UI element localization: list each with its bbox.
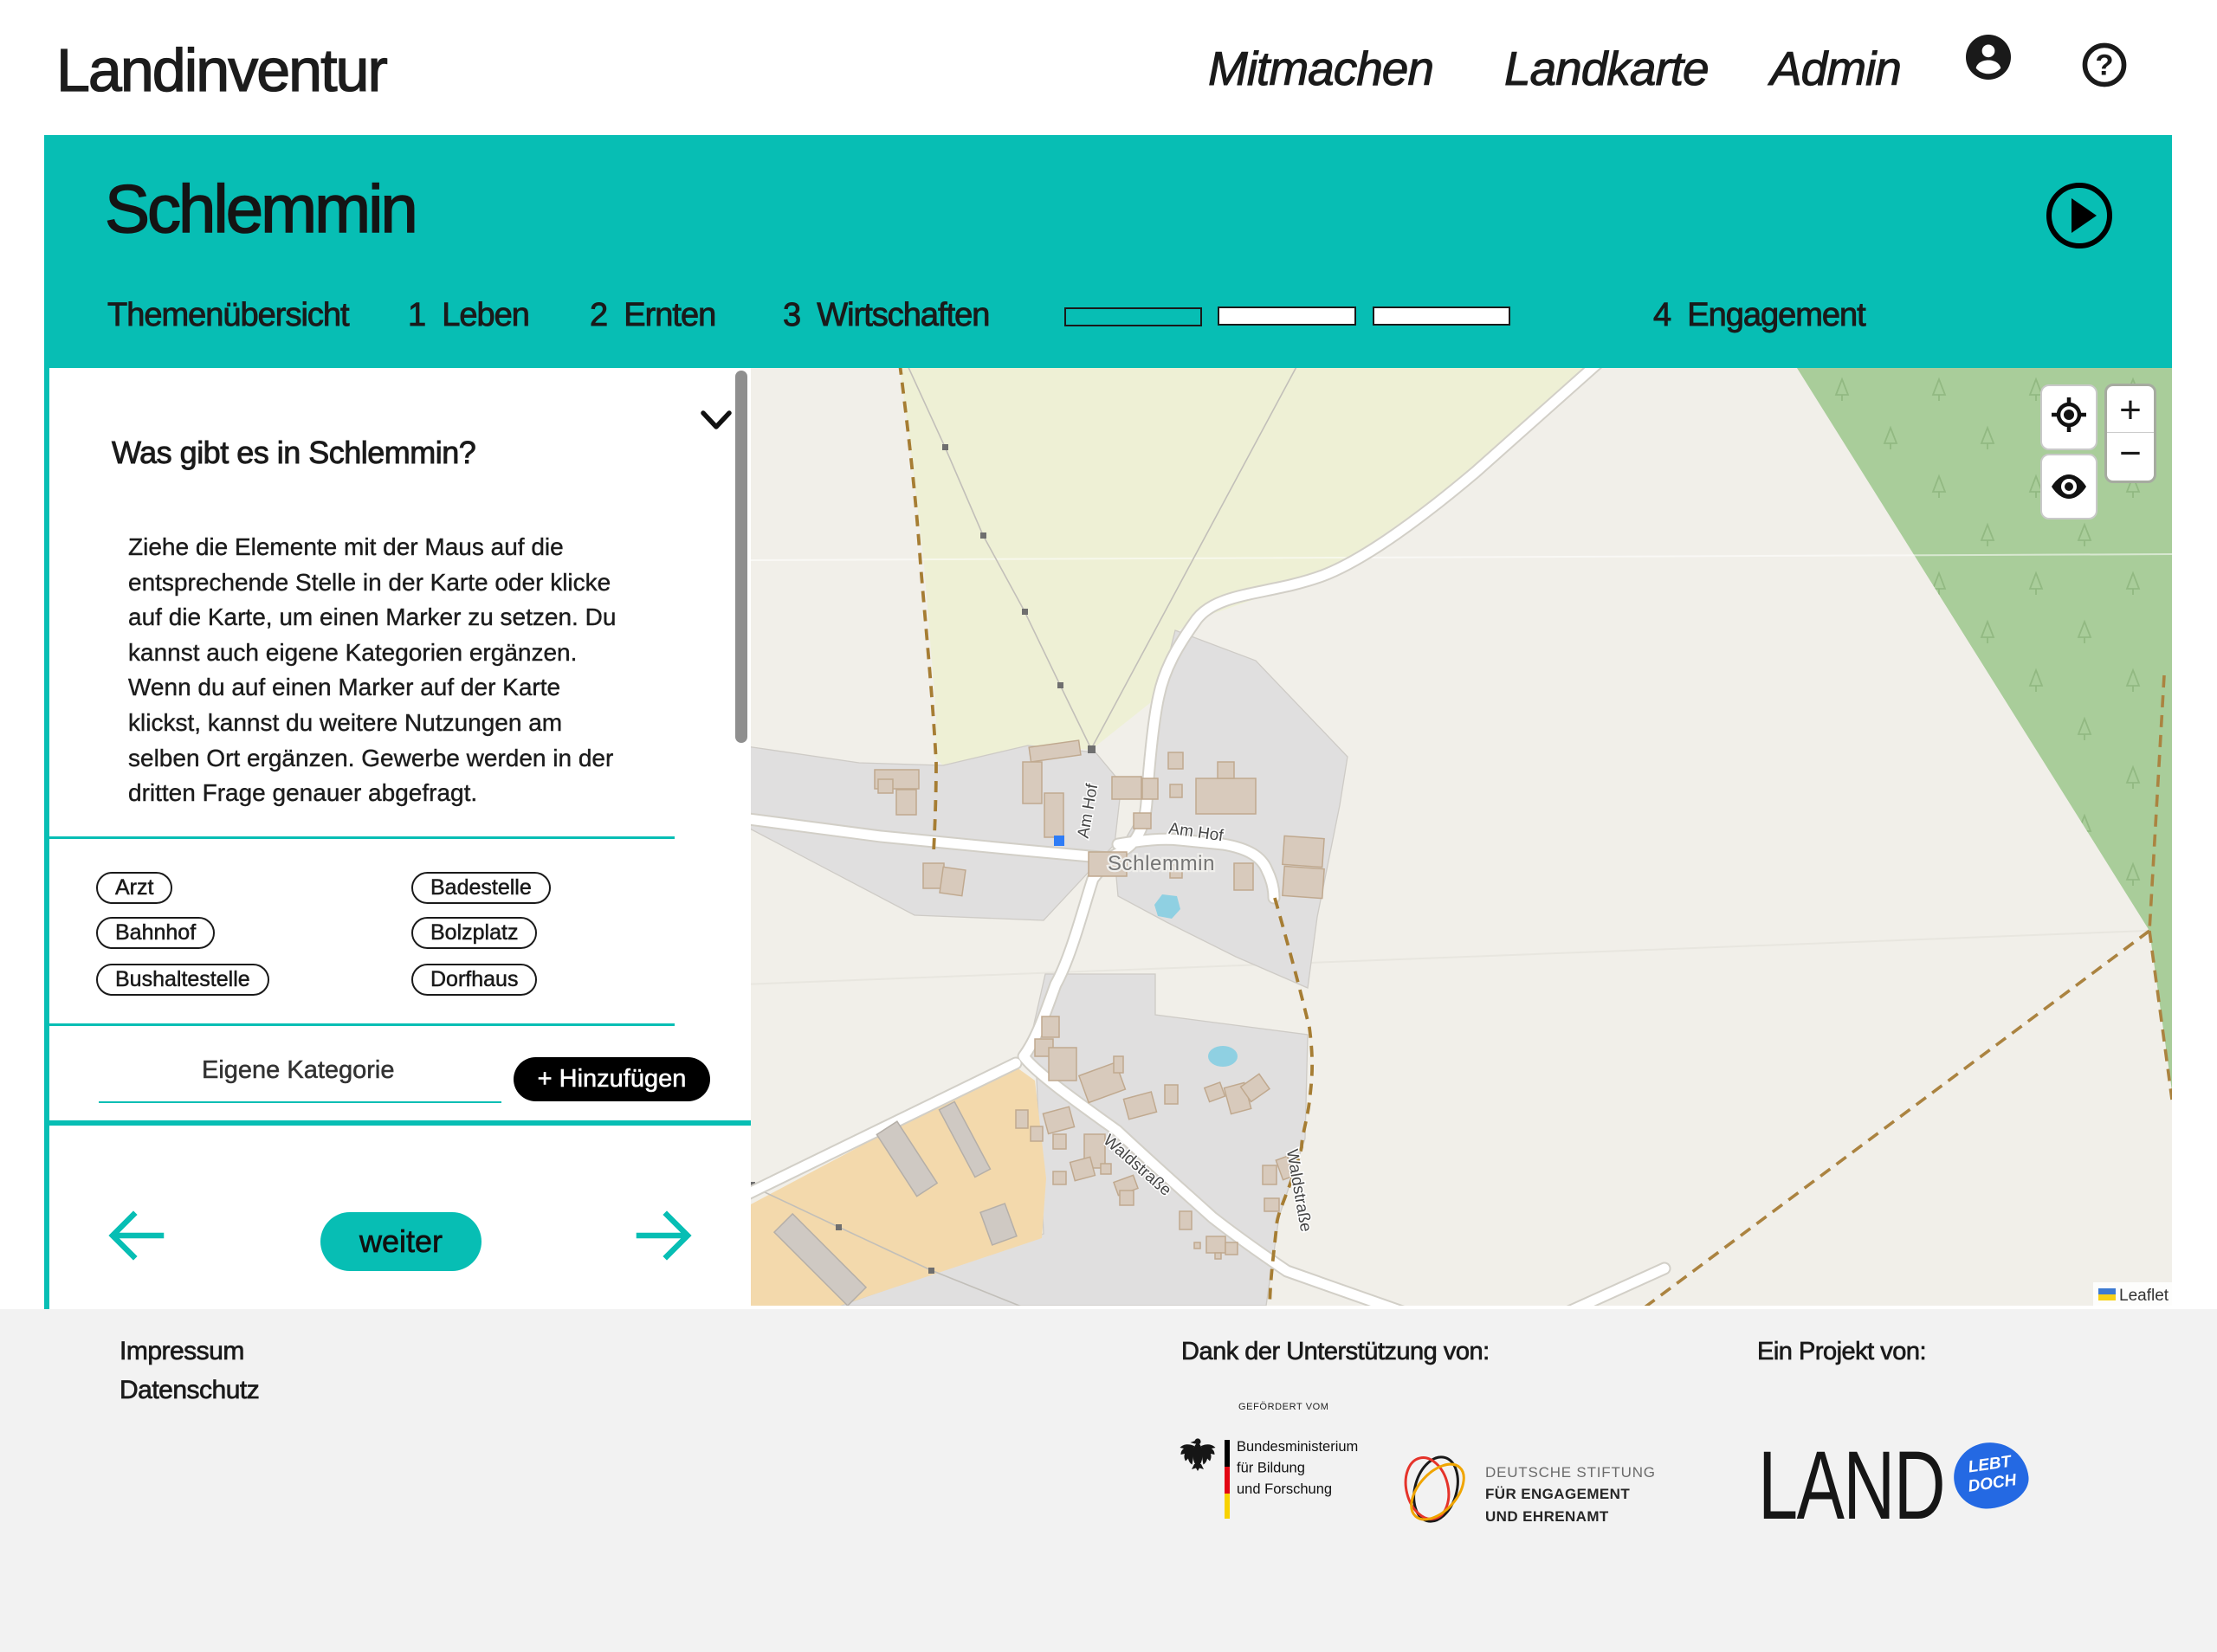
svg-text:für Bildung: für Bildung <box>1237 1461 1305 1476</box>
svg-text:?: ? <box>2095 48 2113 81</box>
svg-text:Bundesministerium: Bundesministerium <box>1237 1439 1358 1455</box>
svg-text:Leaflet: Leaflet <box>2119 1287 2169 1305</box>
svg-text:Schlemmin: Schlemmin <box>1108 852 1215 875</box>
svg-text:FÜR ENGAGEMENT: FÜR ENGAGEMENT <box>1485 1486 1630 1502</box>
svg-text:UND EHRENAMT: UND EHRENAMT <box>1485 1508 1609 1525</box>
svg-text:DEUTSCHE STIFTUNG: DEUTSCHE STIFTUNG <box>1485 1464 1656 1481</box>
svg-text:und Forschung: und Forschung <box>1237 1481 1332 1497</box>
